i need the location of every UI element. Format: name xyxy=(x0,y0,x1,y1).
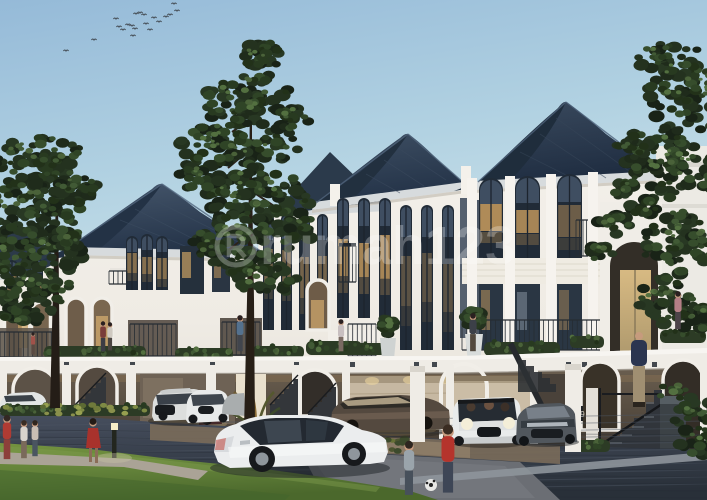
svg-text:rumah123: rumah123 xyxy=(260,216,515,276)
